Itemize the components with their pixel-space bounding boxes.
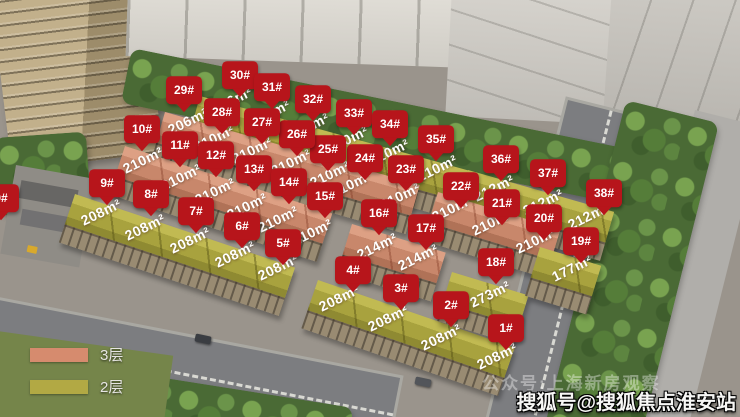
building-marker: 30#	[222, 61, 258, 89]
building-marker: 34#	[372, 110, 408, 138]
building-marker: 2#	[433, 291, 469, 319]
building-marker: 29#	[166, 76, 202, 104]
building-marker: 35#	[418, 125, 454, 153]
building-marker: 0#	[0, 184, 19, 212]
building-marker: 5#	[265, 229, 301, 257]
building-marker: 7#	[178, 197, 214, 225]
building-marker: 8#	[133, 180, 169, 208]
building-marker: 15#	[307, 182, 343, 210]
building-marker: 37#	[530, 159, 566, 187]
building-marker: 12#	[198, 141, 234, 169]
building-marker: 13#	[236, 155, 272, 183]
legend-row-2f: 2层	[30, 376, 123, 397]
building-marker: 17#	[408, 214, 444, 242]
building-marker: 6#	[224, 212, 260, 240]
building-marker: 9#	[89, 169, 125, 197]
building-marker: 22#	[443, 172, 479, 200]
floors-legend: 3层 2层	[30, 344, 123, 408]
building-marker: 1#	[488, 314, 524, 342]
legend-swatch-2f	[30, 380, 88, 394]
building-marker: 24#	[347, 144, 383, 172]
building-marker: 28#	[204, 98, 240, 126]
building-marker: 31#	[254, 73, 290, 101]
building-marker: 26#	[279, 120, 315, 148]
sohu-watermark: 搜狐号@搜狐焦点淮安站	[516, 386, 736, 415]
building-marker: 36#	[483, 145, 519, 173]
building-marker: 11#	[162, 131, 198, 159]
legend-row-3f: 3层	[30, 344, 123, 365]
building-marker: 18#	[478, 248, 514, 276]
building-marker: 38#	[586, 179, 622, 207]
legend-label-3f: 3层	[100, 344, 123, 365]
legend-label-2f: 2层	[100, 376, 123, 397]
legend-swatch-3f	[30, 348, 88, 362]
building-marker: 20#	[526, 204, 562, 232]
building-marker: 23#	[388, 155, 424, 183]
building-marker: 19#	[563, 227, 599, 255]
building-marker: 16#	[361, 199, 397, 227]
building-marker: 3#	[383, 274, 419, 302]
building-marker: 25#	[310, 135, 346, 163]
building-marker: 32#	[295, 85, 331, 113]
building-marker: 10#	[124, 115, 160, 143]
building-marker: 4#	[335, 256, 371, 284]
aerial-site-plan: 1#208m²2#208m²3#208m²4#208m²5#208m²6#208…	[0, 0, 740, 417]
building-marker: 21#	[484, 189, 520, 217]
building-marker: 27#	[244, 108, 280, 136]
building-marker: 14#	[271, 168, 307, 196]
building-marker: 33#	[336, 99, 372, 127]
